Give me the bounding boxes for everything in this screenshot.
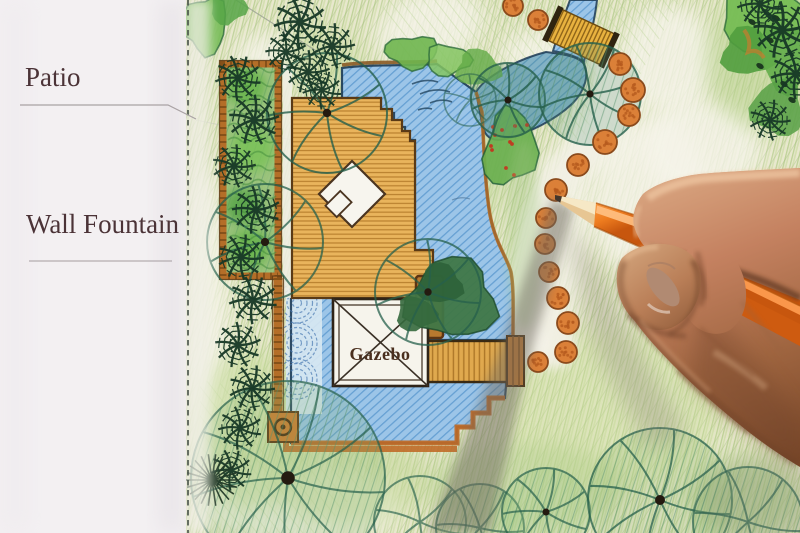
svg-text:Patio: Patio xyxy=(25,62,81,92)
svg-text:Gazebo: Gazebo xyxy=(350,344,411,364)
svg-text:Wall Fountain: Wall Fountain xyxy=(26,209,180,239)
